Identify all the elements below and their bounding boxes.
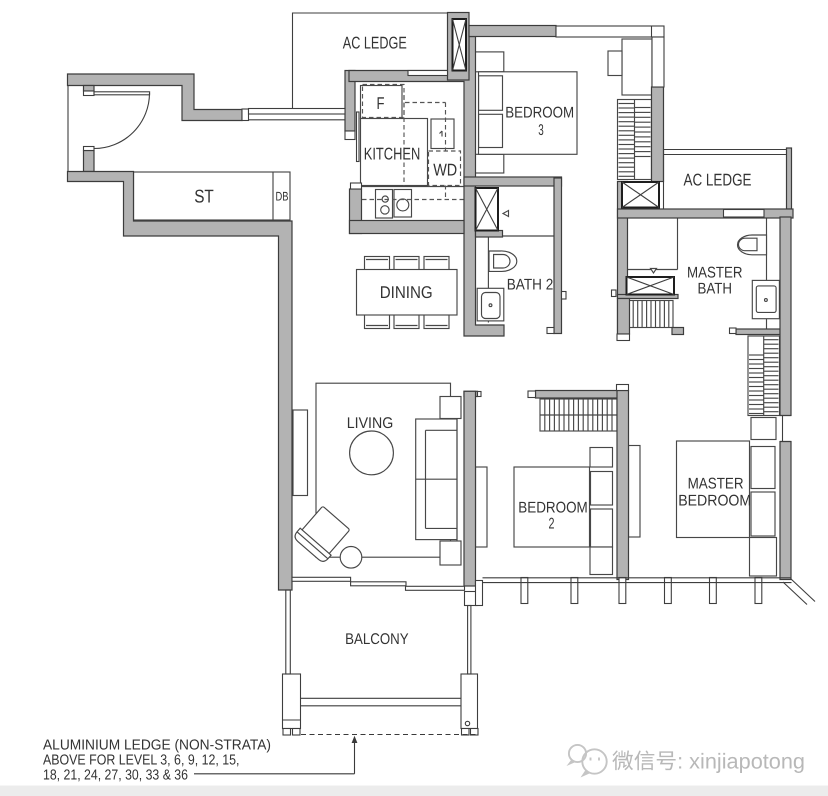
svg-text:ALUMINIUM LEDGE (NON-STRATA): ALUMINIUM LEDGE (NON-STRATA): [43, 737, 271, 753]
svg-text:BATH: BATH: [698, 280, 733, 297]
svg-text:微信号: xinjiapotong: 微信号: xinjiapotong: [612, 750, 805, 774]
svg-text:LIVING: LIVING: [347, 415, 394, 432]
svg-text:BATH 2: BATH 2: [507, 276, 554, 293]
svg-text:BEDROOM: BEDROOM: [678, 493, 751, 510]
svg-text:BEDROOM: BEDROOM: [518, 500, 588, 517]
svg-text:DB: DB: [276, 190, 289, 204]
svg-text:2: 2: [549, 516, 555, 533]
svg-text:3: 3: [538, 122, 544, 139]
svg-text:ST: ST: [194, 185, 214, 206]
svg-text:AC LEDGE: AC LEDGE: [684, 171, 752, 190]
svg-text:KITCHEN: KITCHEN: [364, 145, 421, 164]
svg-text:MASTER: MASTER: [687, 265, 743, 282]
svg-text:BEDROOM: BEDROOM: [505, 105, 574, 122]
svg-text:ABOVE FOR LEVEL 3, 6, 9, 12, 1: ABOVE FOR LEVEL 3, 6, 9, 12, 15,: [43, 752, 240, 768]
svg-text:18, 21, 24, 27, 30, 33 & 36: 18, 21, 24, 27, 30, 33 & 36: [43, 768, 188, 784]
svg-text:AC LEDGE: AC LEDGE: [343, 33, 407, 52]
svg-text:DINING: DINING: [380, 283, 433, 302]
svg-text:F: F: [377, 94, 385, 113]
svg-text:MASTER: MASTER: [688, 476, 744, 493]
svg-text:WD: WD: [433, 161, 457, 180]
svg-text:BALCONY: BALCONY: [345, 631, 409, 648]
